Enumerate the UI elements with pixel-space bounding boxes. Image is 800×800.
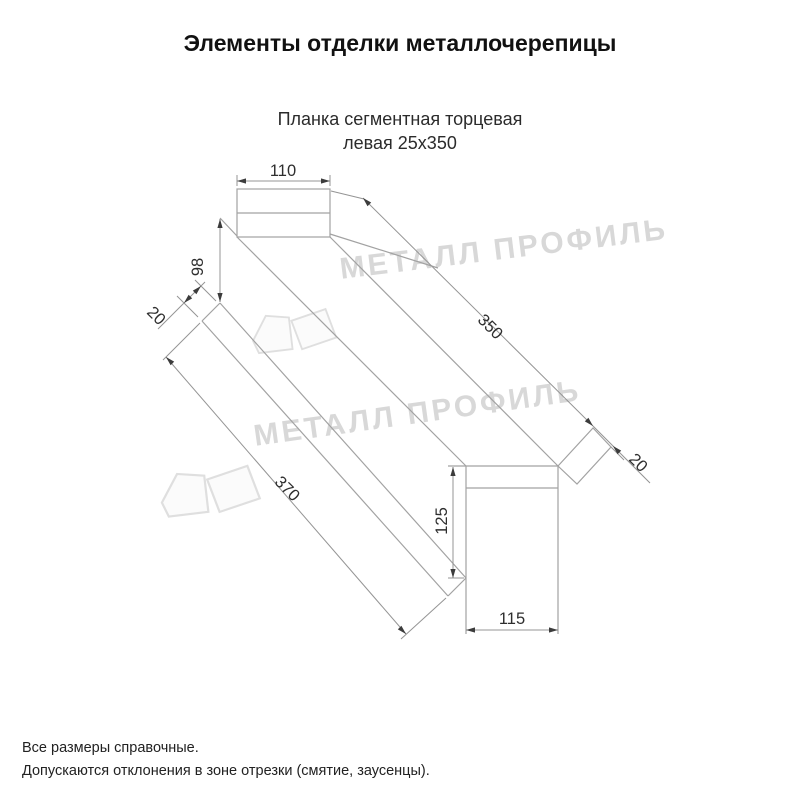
dim-face-width: 115 bbox=[466, 610, 558, 633]
far-corner-edge bbox=[220, 218, 237, 236]
arrowhead bbox=[549, 627, 558, 632]
trim-outline bbox=[202, 189, 611, 634]
footer-note-tolerance: Допускаются отклонения в зоне отрезки (с… bbox=[22, 763, 430, 779]
arrowhead bbox=[450, 467, 455, 476]
dim-label-20-far: 20 bbox=[143, 303, 169, 329]
arrowhead bbox=[466, 627, 475, 632]
flange-right-edge bbox=[330, 237, 558, 466]
dim-label-98: 98 bbox=[189, 258, 207, 276]
arrowhead bbox=[450, 569, 455, 578]
web-bottom-edge bbox=[220, 303, 466, 578]
arrowhead bbox=[217, 293, 222, 302]
dim-end-lip: 20 bbox=[593, 426, 651, 483]
technical-drawing: 110 98 20 350 20 370 bbox=[0, 0, 800, 800]
lip-near-end-edge bbox=[448, 578, 466, 596]
arrowhead bbox=[398, 626, 406, 634]
dim-back-height: 98 bbox=[189, 219, 223, 302]
arrowhead bbox=[237, 178, 246, 183]
lip-far-end-edge bbox=[202, 303, 220, 321]
dim-label-115: 115 bbox=[499, 610, 525, 628]
extension-line bbox=[331, 191, 364, 199]
dim-face-height: 125 bbox=[433, 467, 464, 578]
arrowhead bbox=[166, 357, 174, 365]
lip-outer-edge bbox=[202, 321, 448, 596]
dim-label-350: 350 bbox=[474, 311, 506, 343]
flange-depth-edge bbox=[330, 234, 438, 268]
dim-flange-width: 110 bbox=[237, 162, 330, 186]
extension-line bbox=[163, 323, 200, 360]
dim-label-110: 110 bbox=[270, 162, 296, 180]
dim-label-20-near: 20 bbox=[625, 450, 651, 476]
web-top-left-edge bbox=[237, 237, 466, 466]
extension-line bbox=[401, 598, 446, 639]
dimension-line bbox=[363, 198, 593, 426]
dim-back-lip: 20 bbox=[143, 280, 216, 329]
dim-length-front: 370 bbox=[163, 323, 446, 639]
dim-label-370: 370 bbox=[271, 473, 303, 505]
footer-note-dimensions: Все размеры справочные. bbox=[22, 740, 199, 756]
arrowhead bbox=[321, 178, 330, 183]
dim-label-125: 125 bbox=[433, 507, 451, 535]
dim-length-top: 350 bbox=[331, 191, 593, 426]
